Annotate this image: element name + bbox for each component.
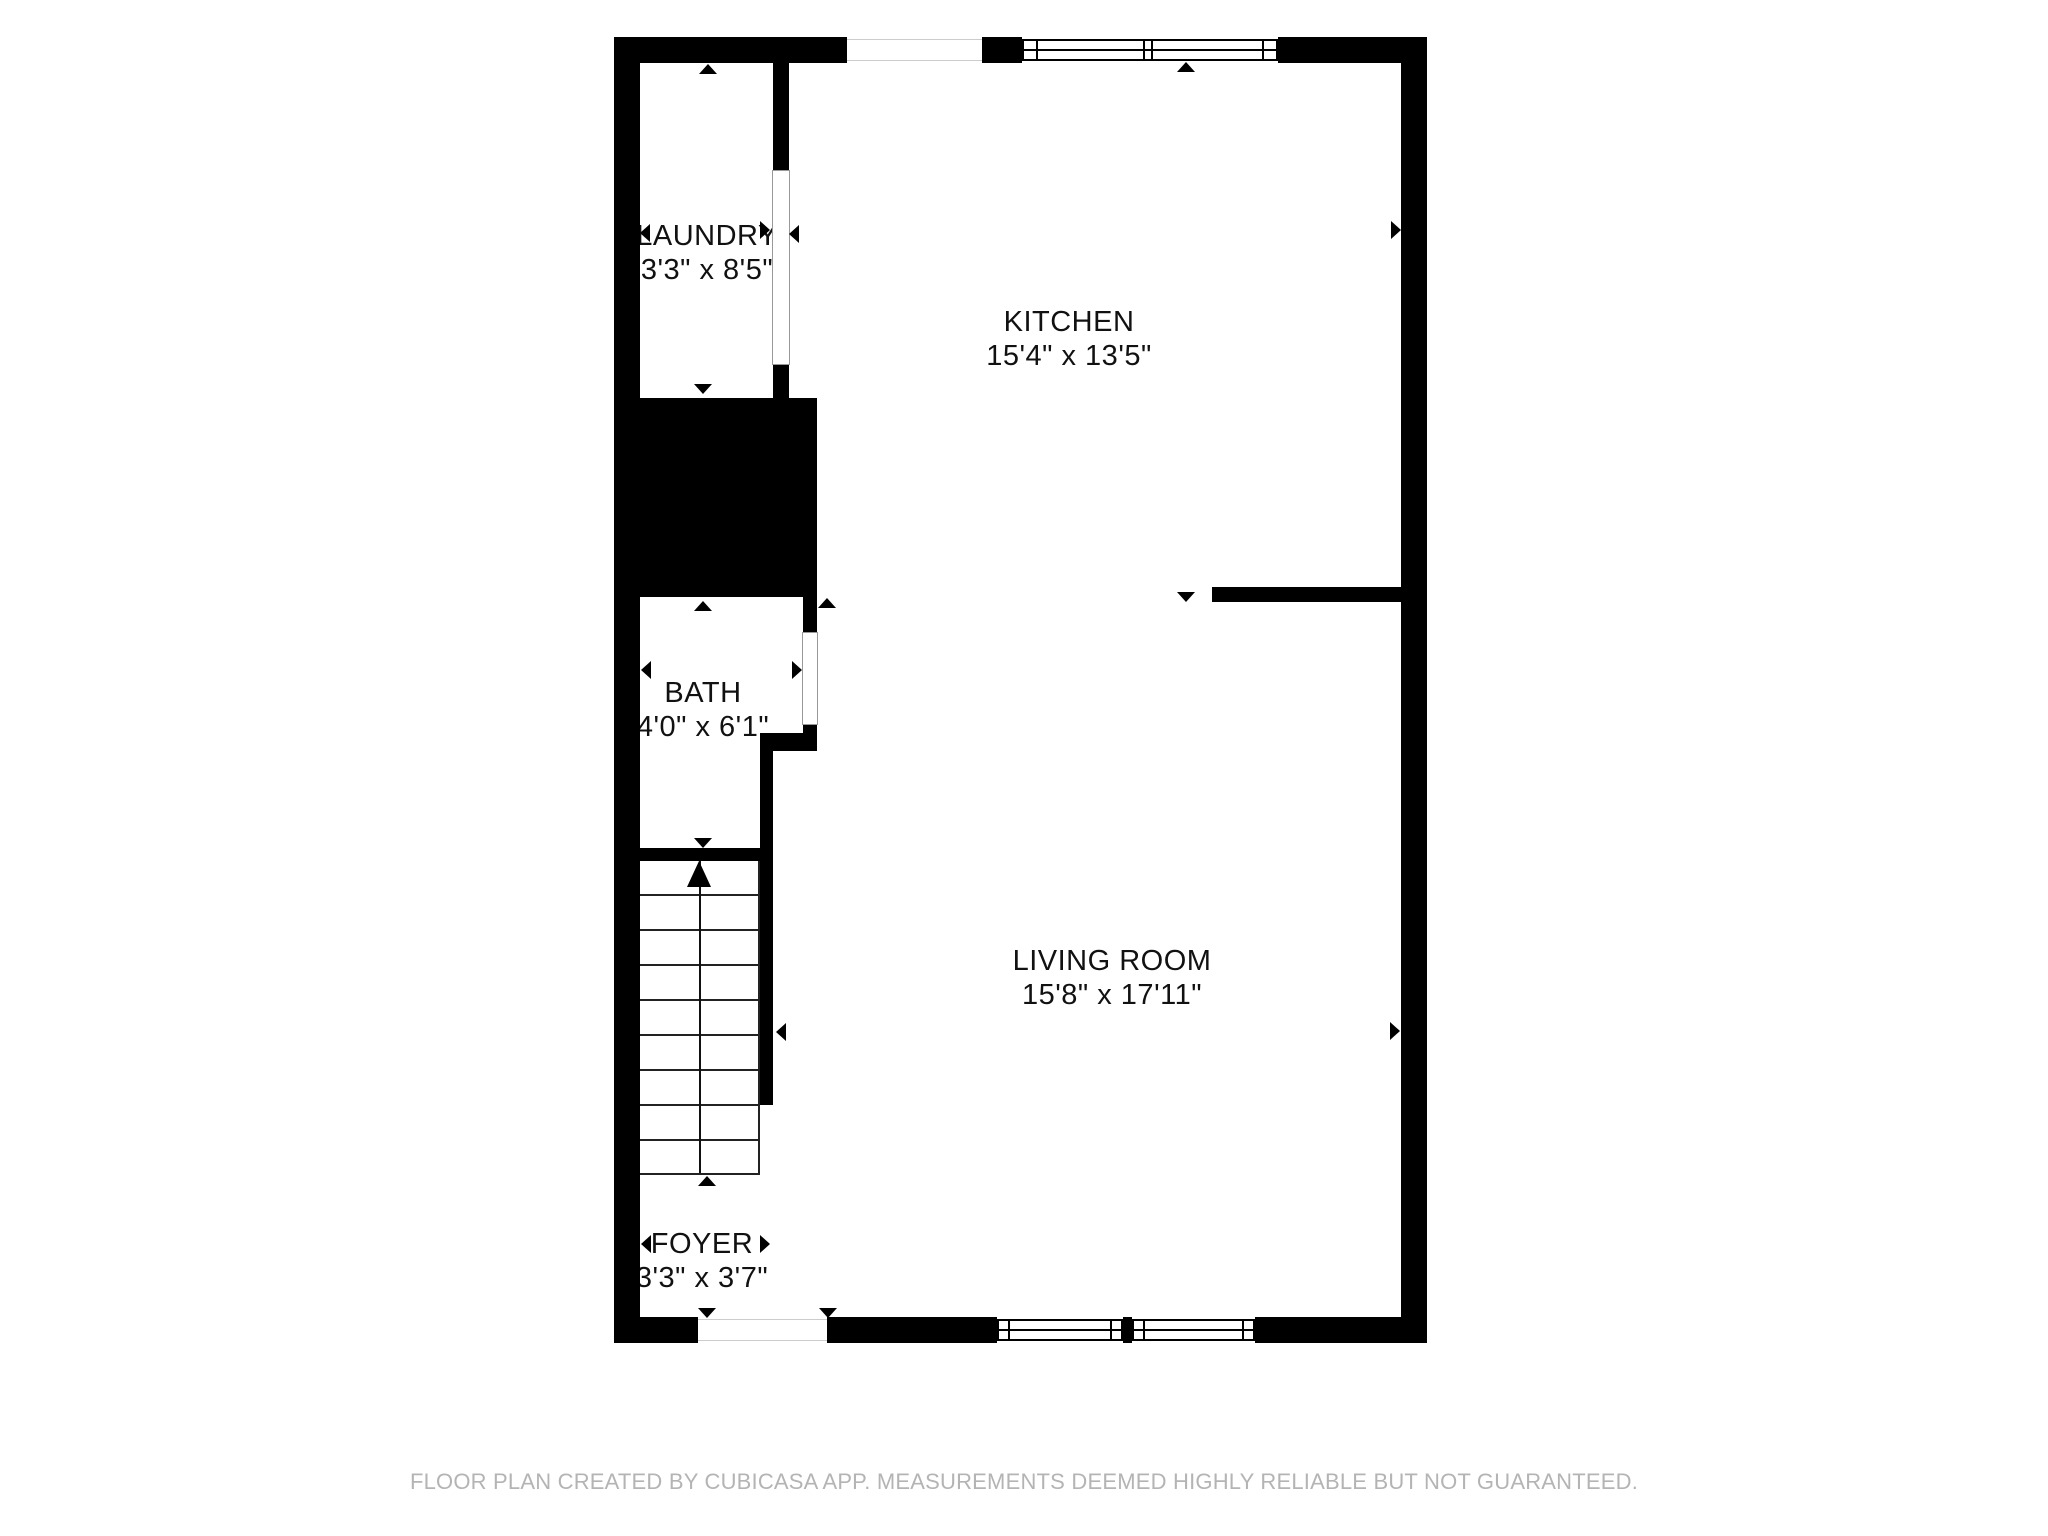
arrow-up-icon-kitchen-north — [1177, 62, 1195, 72]
footer-disclaimer: FLOOR PLAN CREATED BY CUBICASA APP. MEAS… — [0, 1469, 2048, 1495]
window-mullion — [1262, 41, 1264, 59]
room-dims-living-room: 15'8" x 17'11" — [1013, 978, 1212, 1012]
wall-top-segment-c — [1278, 37, 1427, 63]
arrow-down-icon-kitchen-south — [1177, 592, 1195, 602]
front-door-opening — [698, 1319, 827, 1341]
arrow-down-icon-laundry-south — [694, 384, 712, 394]
arrow-right-icon-kitchen-east — [1391, 221, 1401, 239]
arrow-left-icon-laundry-east-outer — [789, 225, 799, 243]
window-mullion — [1143, 41, 1145, 59]
wall-bottom-segment-c — [1255, 1317, 1427, 1343]
room-label-laundry: LAUNDRY 3'3" x 8'5" — [636, 219, 778, 287]
solid-utility-block — [640, 398, 817, 597]
stairs-direction-line — [699, 861, 701, 1173]
window-glass-line — [1024, 49, 1276, 51]
wall-bottom-window-post — [1123, 1317, 1132, 1343]
room-name-living-room: LIVING ROOM — [1013, 944, 1212, 978]
window-glass-line — [1134, 1329, 1253, 1331]
arrow-left-icon-bath-west — [641, 661, 651, 679]
kitchen-top-opening — [847, 39, 982, 61]
wall-exterior-left — [614, 37, 640, 1343]
window-mullion — [1151, 41, 1153, 59]
room-name-foyer: FOYER — [636, 1227, 768, 1261]
wall-top-segment-a — [614, 37, 847, 63]
arrow-right-icon-foyer-east — [760, 1235, 770, 1253]
room-dims-kitchen: 15'4" x 13'5" — [986, 339, 1152, 373]
wall-bath-south — [640, 848, 773, 861]
room-dims-bath: 4'0" x 6'1" — [637, 710, 769, 744]
kitchen-window — [1022, 39, 1278, 61]
room-label-foyer: FOYER 3'3" x 3'7" — [636, 1227, 768, 1295]
wall-laundry-east-lower — [773, 365, 789, 398]
bath-door-opening — [802, 632, 818, 725]
wall-kitchen-living-divider — [1212, 587, 1401, 602]
stairs-up-arrow-icon — [687, 861, 711, 887]
room-label-living-room: LIVING ROOM 15'8" x 17'11" — [1013, 944, 1212, 1012]
wall-laundry-east-upper — [773, 63, 789, 170]
arrow-down-icon-front-door-east — [819, 1308, 837, 1318]
wall-exterior-right — [1401, 37, 1427, 1343]
window-mullion — [1110, 1321, 1112, 1339]
room-name-kitchen: KITCHEN — [986, 305, 1152, 339]
wall-bottom-segment-a — [614, 1317, 698, 1343]
room-label-bath: BATH 4'0" x 6'1" — [637, 676, 769, 744]
arrow-up-icon-kitchen-southwest — [818, 598, 836, 608]
window-mullion — [1242, 1321, 1244, 1339]
laundry-door-opening — [772, 170, 790, 365]
window-mullion — [1008, 1321, 1010, 1339]
arrow-up-icon-foyer-north — [698, 1176, 716, 1186]
arrow-right-icon-laundry-east — [760, 221, 770, 239]
room-name-bath: BATH — [637, 676, 769, 710]
wall-bath-east-upper — [803, 597, 817, 632]
wall-bottom-segment-b — [827, 1317, 997, 1343]
living-room-window-right — [1132, 1319, 1255, 1341]
arrow-left-icon-stairs-east — [776, 1023, 786, 1041]
window-glass-line — [999, 1329, 1121, 1331]
arrow-left-icon-foyer-west — [641, 1235, 651, 1253]
room-name-laundry: LAUNDRY — [636, 219, 778, 253]
staircase — [640, 861, 760, 1175]
wall-top-segment-b — [982, 37, 1022, 63]
room-dims-laundry: 3'3" x 8'5" — [636, 253, 778, 287]
wall-stairs-east — [760, 751, 773, 1105]
wall-bath-jog — [760, 733, 817, 751]
arrow-right-icon-living-room-east — [1390, 1022, 1400, 1040]
arrow-up-icon-laundry-north — [699, 64, 717, 74]
arrow-right-icon-bath-east — [792, 661, 802, 679]
arrow-down-icon-bath-south — [694, 838, 712, 848]
arrow-down-icon-front-door-west — [698, 1308, 716, 1318]
window-mullion — [1143, 1321, 1145, 1339]
room-label-kitchen: KITCHEN 15'4" x 13'5" — [986, 305, 1152, 373]
room-dims-foyer: 3'3" x 3'7" — [636, 1261, 768, 1295]
arrow-up-icon-bath-north — [694, 601, 712, 611]
window-mullion — [1036, 41, 1038, 59]
floor-plan-page: LAUNDRY 3'3" x 8'5" KITCHEN 15'4" x 13'5… — [0, 0, 2048, 1536]
living-room-window-left — [997, 1319, 1123, 1341]
arrow-left-icon-laundry-west — [640, 224, 650, 242]
